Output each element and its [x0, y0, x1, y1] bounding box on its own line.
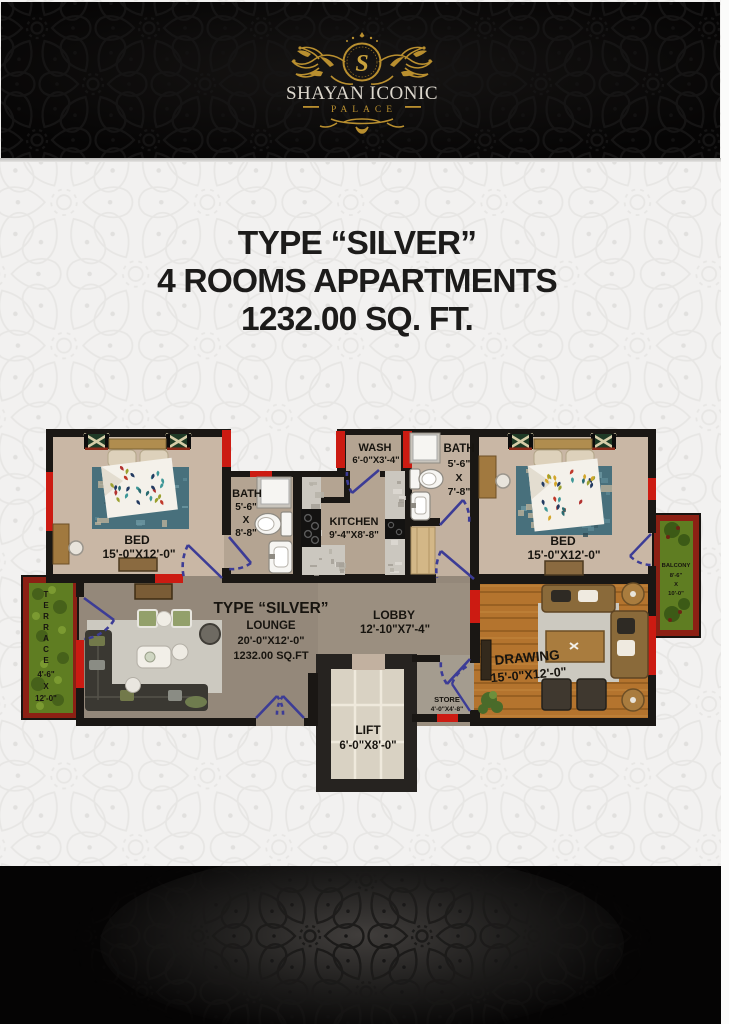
svg-text:WASH: WASH [359, 442, 392, 454]
svg-text:STORE: STORE [434, 695, 460, 704]
svg-text:KITCHEN: KITCHEN [330, 516, 379, 528]
svg-text:6'-0"X3'-4": 6'-0"X3'-4" [352, 455, 399, 466]
svg-text:C: C [43, 645, 49, 654]
svg-text:E: E [43, 601, 49, 610]
svg-text:7'-8": 7'-8" [448, 486, 471, 498]
svg-text:R: R [43, 612, 49, 621]
svg-text:X: X [43, 682, 49, 691]
svg-text:BATH: BATH [232, 488, 262, 500]
svg-text:X: X [674, 582, 678, 588]
svg-text:9'-4"X8'-8": 9'-4"X8'-8" [329, 530, 379, 541]
svg-text:LIFT: LIFT [355, 723, 381, 737]
svg-text:X: X [455, 472, 462, 484]
svg-text:10'-0": 10'-0" [668, 591, 684, 597]
svg-text:TYPE “SILVER”: TYPE “SILVER” [213, 600, 328, 617]
svg-text:15'-0"X12'-0": 15'-0"X12'-0" [102, 547, 175, 561]
svg-text:5'-6": 5'-6" [448, 458, 471, 470]
svg-text:R: R [43, 623, 49, 632]
svg-text:E: E [43, 656, 49, 665]
svg-text:6'-0"X8'-0": 6'-0"X8'-0" [339, 740, 396, 752]
svg-text:4'-0"X4'-8": 4'-0"X4'-8" [431, 706, 463, 713]
svg-text:4'-6": 4'-6" [37, 670, 54, 679]
svg-text:8'-8": 8'-8" [235, 528, 257, 539]
svg-text:BATH: BATH [443, 443, 474, 455]
svg-text:5'-6": 5'-6" [235, 502, 257, 513]
svg-text:12'-0": 12'-0" [35, 694, 57, 703]
svg-text:15'-0"X12'-0": 15'-0"X12'-0" [527, 548, 600, 562]
svg-text:BED: BED [550, 534, 576, 548]
svg-text:LOBBY: LOBBY [373, 608, 415, 622]
svg-text:LOUNGE: LOUNGE [246, 620, 296, 632]
svg-text:12'-10"X7'-4": 12'-10"X7'-4" [360, 624, 430, 636]
svg-text:T: T [44, 590, 49, 599]
svg-text:X: X [243, 515, 250, 526]
svg-text:BALCONY: BALCONY [662, 563, 691, 569]
svg-text:BED: BED [124, 533, 150, 547]
svg-text:1232.00 SQ.FT: 1232.00 SQ.FT [233, 650, 308, 662]
svg-text:A: A [43, 634, 49, 643]
svg-text:8'-6": 8'-6" [670, 573, 683, 579]
svg-text:20'-0"X12'-0": 20'-0"X12'-0" [237, 635, 304, 647]
